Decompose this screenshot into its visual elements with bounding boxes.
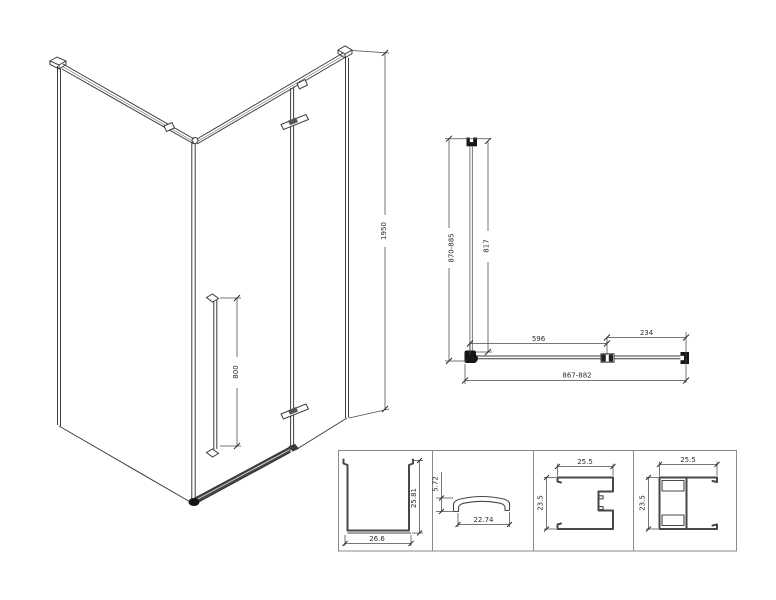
dim-channel-height-label: 25.81 [410,488,418,508]
door-hinge-top [281,115,309,130]
dim-fixed-panel-label: 234 [640,329,654,337]
glass-clamp-right [297,80,308,90]
side-glass-plan [470,147,473,354]
dim-channel-height: 25.81 [410,458,423,536]
dim-door-glass-label: 596 [532,335,546,343]
dim-female-width-label: 25.5 [577,458,593,466]
dim-threshold-width-label: 22.74 [473,516,494,524]
hinge-plan [601,354,614,362]
dim-male-width-label: 25.5 [680,456,696,464]
wall-profile-male: 25.5 23.5 [639,456,720,532]
door-glass-plan [477,356,601,359]
dim-channel-width: 26.6 [343,535,414,546]
wall-profile-female: 25.5 23.5 [537,458,616,532]
wall-bracket-right [681,352,690,364]
dim-threshold-height: 5.72 [432,472,454,514]
dim-side-glass: 817 [476,138,492,355]
dim-front-overall-label: 867-882 [562,372,591,380]
dim-male-height: 23.5 [639,475,659,532]
dim-female-height: 23.5 [537,475,557,532]
threshold-rail [189,444,300,506]
dim-handle-length: 800 [220,295,241,449]
dim-male-height-label: 23.5 [639,495,647,511]
plan-view: 870-885 817 596 234 [445,136,689,384]
dim-side-glass-label: 817 [483,239,491,252]
dim-handle-label: 800 [232,365,240,378]
glass-clamp-left [164,123,175,132]
side-panel-bottom-edge [59,426,192,503]
dim-female-width: 25.5 [555,458,616,476]
dim-female-height-label: 23.5 [537,495,545,511]
dim-side-overall-label: 870-885 [448,233,456,262]
dim-front-overall: 867-882 [462,364,689,384]
dim-male-width: 25.5 [657,456,720,476]
isometric-view: 800 1950 [50,46,389,506]
right-wall-profile [346,56,349,418]
fixed-panel-bottom-edge [297,418,347,449]
door-stile [291,87,294,449]
threshold-profile: 5.72 22.74 [432,472,513,527]
corner-post [192,138,198,503]
dim-total-height: 1950 [349,50,389,418]
dim-threshold-height-label: 5.72 [432,476,440,492]
left-wall-profile [58,66,61,426]
technical-drawing: 800 1950 [0,0,776,600]
drawing-canvas: 800 1950 [0,0,776,600]
dim-height-label: 1950 [380,222,388,240]
wall-channel-profile: 26.6 25.81 [343,458,424,546]
left-top-rail [62,64,194,144]
dim-threshold-width: 22.74 [456,512,513,527]
profile-sections: 26.6 25.81 5.72 [339,451,737,552]
dim-channel-width-label: 26.6 [369,535,385,543]
door-hinge-bottom [281,404,309,419]
right-top-rail [197,53,344,144]
door-handle [207,294,219,457]
fixed-glass-plan [614,356,681,359]
